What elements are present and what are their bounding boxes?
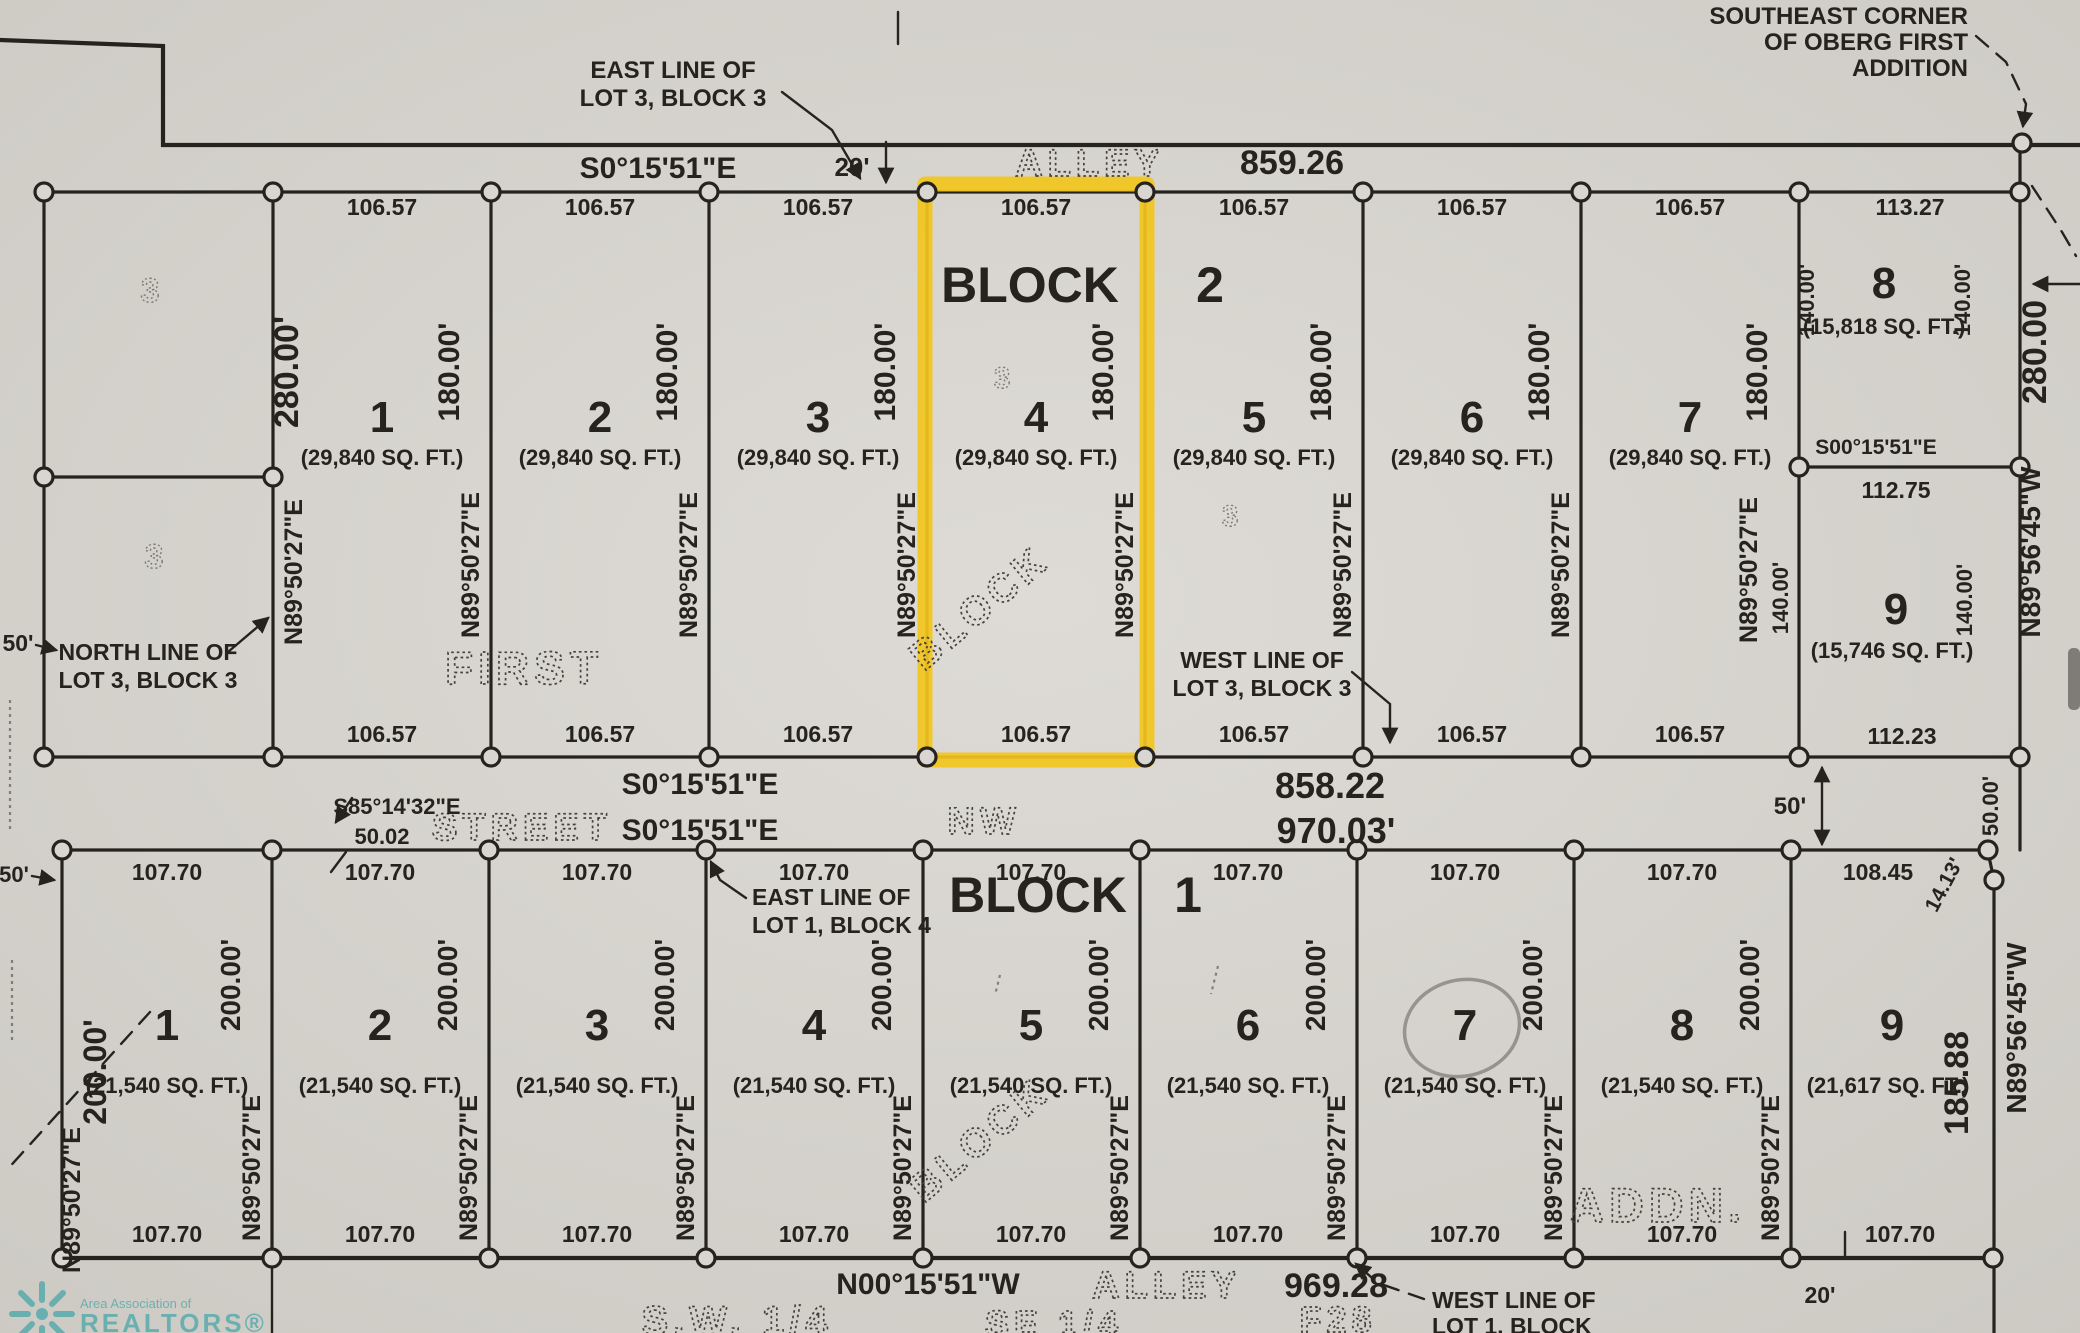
lot-bottom-width: 107.70	[132, 1221, 202, 1247]
logo-line2: REALTORS®	[80, 1308, 267, 1333]
faint-digit: 3	[1222, 500, 1239, 533]
bottom-alley-width: 20'	[1804, 1282, 1835, 1308]
lot-top-width: 107.70	[345, 859, 415, 885]
lot-number: 1	[370, 393, 394, 442]
lot-side-dim: 200.00'	[432, 939, 463, 1031]
se-corner-note: SOUTHEAST CORNER	[1709, 3, 1968, 30]
scan-smudge	[2068, 648, 2080, 710]
lot-number: 3	[585, 1001, 609, 1050]
lot-side-dim: 200.00'	[215, 939, 246, 1031]
lot-side-dim: 200.00'	[1300, 939, 1331, 1031]
lot-area: (29,840 SQ. FT.)	[955, 445, 1118, 470]
fifty-ft-label-b1: 50'	[0, 862, 29, 887]
lot-number: 2	[368, 1001, 392, 1050]
section-fragment-dotted: SE 1/4	[985, 1303, 1123, 1333]
lot-bearing: N89°50'27"E	[1547, 492, 1575, 638]
lot-bottom-width: 107.70	[1213, 1221, 1283, 1247]
lot-area: (21,540 SQ. FT.)	[516, 1073, 679, 1098]
faint-digit: 3	[994, 362, 1011, 395]
lot-side-dim: 180.00'	[1523, 323, 1556, 422]
lot-number: 5	[1242, 393, 1266, 442]
lot-top-width: 106.57	[783, 194, 853, 220]
lot-bearing: N89°50'27"E	[672, 1095, 700, 1241]
west-line-note: WEST LINE OF	[1180, 647, 1344, 673]
section-fragment-dotted: F28	[1299, 1299, 1376, 1333]
lot-side-dim: 180.00'	[1305, 323, 1338, 422]
street-bearing-upper: S0°15'51"E	[622, 768, 779, 801]
lot-bearing: N89°50'27"E	[1735, 497, 1763, 643]
lot-number: 7	[1678, 393, 1702, 442]
lot-area: (29,840 SQ. FT.)	[1391, 445, 1554, 470]
lot-bottom-width: 107.70	[562, 1221, 632, 1247]
lot-side-dim: 200.00'	[1083, 939, 1114, 1031]
north-line-note: LOT 3, BLOCK 3	[59, 667, 238, 693]
lot-bearing: N89°50'27"E	[1757, 1095, 1785, 1241]
lot-top-width: 106.57	[1655, 194, 1725, 220]
street-bearing-lower: S0°15'51"E	[622, 814, 779, 847]
street-width-right: 50.00'	[1978, 776, 2003, 836]
east-boundary-bearing: N89°56'45"W	[2015, 466, 2046, 638]
lot-side-dim: 200.00'	[1517, 939, 1548, 1031]
bottom-alley-bearing: N00°15'51"W	[836, 1268, 1020, 1301]
addn-dotted: ADDN.	[1570, 1180, 1747, 1233]
lot-top-width: 107.70	[1430, 859, 1500, 885]
plat-map-scan: EAST LINE OF LOT 3, BLOCK 3 SOUTHEAST CO…	[0, 0, 2080, 1333]
west-line-note-bottom: WEST LINE OF	[1432, 1287, 1596, 1313]
lot-number: 7	[1453, 1001, 1477, 1050]
lot-number: 8	[1670, 1001, 1694, 1050]
lot-top-width: 106.57	[1219, 194, 1289, 220]
lot-area: (21,540 SQ. FT.)	[1601, 1073, 1764, 1098]
lot-top-width: 107.70	[562, 859, 632, 885]
lot-top-width: 107.70	[996, 859, 1066, 885]
lot-bottom-width: 106.57	[783, 721, 853, 747]
lot-area: (15,746 SQ. FT.)	[1811, 638, 1974, 663]
nw-dotted: NW	[947, 801, 1020, 843]
north-line-note: NORTH LINE OF	[59, 639, 238, 665]
lot-bottom-width: 107.70	[1865, 1221, 1935, 1247]
lot-bottom-width: 106.57	[1219, 721, 1289, 747]
street-dist-lower: 970.03'	[1277, 810, 1396, 851]
block2-number: 2	[1196, 257, 1224, 313]
east-boundary-dim-b1: 185.88	[1938, 1031, 1976, 1135]
lot-number: 9	[1884, 585, 1908, 634]
alley-width-label: 20'	[834, 152, 869, 182]
se-corner-note: ADDITION	[1852, 55, 1968, 82]
lot-number: 6	[1236, 1001, 1260, 1050]
lot-side-dim: 180.00'	[1741, 323, 1774, 422]
block2-word: BLOCK	[941, 257, 1119, 313]
lot-top-width: 107.70	[132, 859, 202, 885]
west-line-note: LOT 3, BLOCK 3	[1173, 675, 1352, 701]
alley-bearing: S0°15'51"E	[580, 152, 737, 185]
lot-top-width: 106.57	[347, 194, 417, 220]
lot-top-width: 106.57	[1001, 194, 1071, 220]
lot-side-dim: 140.00'	[1950, 264, 1975, 337]
east-boundary-bearing-b1: N89°56'45"W	[2001, 942, 2032, 1114]
lot-top-width: 106.57	[1437, 194, 1507, 220]
lot-bearing: N89°50'27"E	[1329, 492, 1357, 638]
lot-area: (29,840 SQ. FT.)	[737, 445, 900, 470]
lot-side-dim: 180.00'	[1087, 323, 1120, 422]
east-boundary-dim: 280.00	[2016, 300, 2054, 404]
lot-top-width: 108.45	[1843, 859, 1914, 885]
faint-digit: 3	[145, 538, 164, 576]
lot-area: (21,540 SQ. FT.)	[299, 1073, 462, 1098]
lot-number: 9	[1880, 1001, 1904, 1050]
lot-bearing: N89°50'27"E	[455, 1095, 483, 1241]
faint-digit: 3	[141, 272, 160, 310]
lot-side-dim: 180.00'	[651, 323, 684, 422]
lot-bottom-width: 106.57	[347, 721, 417, 747]
lot-area: (29,840 SQ. FT.)	[301, 445, 464, 470]
lot-top-width: 107.70	[779, 859, 849, 885]
lot9-bottom-width: 112.23	[1867, 723, 1936, 749]
west-boundary-dim-b1: 200.00'	[77, 1019, 113, 1124]
lot-bearing: N89°50'27"E	[675, 492, 703, 638]
lot-number: 2	[588, 393, 612, 442]
lot-bottom-width: 106.57	[1437, 721, 1507, 747]
first-street-dotted: FIRST	[445, 642, 603, 694]
lot-number: 4	[802, 1001, 827, 1050]
east-line-note-b1: LOT 1, BLOCK 4	[752, 912, 931, 938]
lot-bearing: N89°50'27"E	[893, 492, 921, 638]
lot-number: 6	[1460, 393, 1484, 442]
east-line-note-b1: EAST LINE OF	[752, 884, 910, 910]
lot-number: 5	[1019, 1001, 1043, 1050]
lot-top-width: 106.57	[565, 194, 635, 220]
lot-number: 8	[1872, 259, 1896, 308]
lot-number: 3	[806, 393, 830, 442]
lot-bottom-width: 107.70	[345, 1221, 415, 1247]
lot1-left-dim: 280.00'	[268, 316, 306, 428]
lot-bearing: N89°50'27"E	[1106, 1095, 1134, 1241]
lot-side-dim: 200.00'	[866, 939, 897, 1031]
lot-bottom-width: 106.57	[1001, 721, 1071, 747]
lot-bearing: N89°50'27"E	[457, 492, 485, 638]
s85-distance: 50.02	[354, 824, 409, 849]
lot-side-dim: 180.00'	[869, 323, 902, 422]
bottom-alley-dotted: ALLEY	[1092, 1265, 1242, 1307]
lot-side-dim: 140.00'	[1794, 264, 1819, 337]
lot8-bottom-width: 112.75	[1861, 477, 1930, 503]
lot-side-dim: 140.00'	[1768, 562, 1793, 635]
lot-bottom-width: 107.70	[779, 1221, 849, 1247]
section-fragment-dotted: S.W. 1/4	[641, 1299, 832, 1333]
lot-side-dim: 180.00'	[433, 323, 466, 422]
lot-side-dim: 140.00'	[1952, 564, 1977, 637]
lot-top-width: 107.70	[1213, 859, 1283, 885]
lot-bearing: N89°50'27"E	[1323, 1095, 1351, 1241]
street-width-label: 50'	[1774, 793, 1806, 820]
east-line-note: LOT 3, BLOCK 3	[580, 85, 767, 112]
fifty-ft-label: 50'	[2, 630, 33, 656]
lot-area: (21,540 SQ. FT.)	[1167, 1073, 1330, 1098]
lot-bottom-width: 106.57	[565, 721, 635, 747]
se-corner-note: OF OBERG FIRST	[1764, 29, 1968, 56]
lot-area: (29,840 SQ. FT.)	[519, 445, 682, 470]
lot-area: (29,840 SQ. FT.)	[1609, 445, 1772, 470]
lot-area: (29,840 SQ. FT.)	[1173, 445, 1336, 470]
west-line-note-bottom: LOT 1, BLOCK	[1432, 1313, 1592, 1333]
lot-bearing: N89°50'27"E	[238, 1095, 266, 1241]
lot-top-width: 107.70	[1647, 859, 1717, 885]
lot-side-dim: 200.00'	[649, 939, 680, 1031]
lot1-left-bearing: N89°50'27"E	[280, 499, 308, 645]
lot-bottom-width: 107.70	[996, 1221, 1066, 1247]
lot-number: 1	[155, 1001, 179, 1050]
alley-name-dotted: ALLEY	[1015, 143, 1165, 185]
east-line-note: EAST LINE OF	[590, 57, 755, 84]
street-dist-upper: 858.22	[1275, 765, 1385, 806]
west-boundary-bearing-b1: N89°50'27"E	[58, 1127, 86, 1273]
lot-bottom-width: 106.57	[1655, 721, 1725, 747]
lot-area: (15,818 SQ. FT.)	[1803, 314, 1966, 339]
lot-bottom-width: 107.70	[1430, 1221, 1500, 1247]
lot-bearing: N89°50'27"E	[1111, 492, 1139, 638]
lot-number: 4	[1024, 393, 1049, 442]
lot-area: (21,540 SQ. FT.)	[1384, 1073, 1547, 1098]
lot-side-dim: 200.00'	[1734, 939, 1765, 1031]
alley-distance: 859.26	[1240, 144, 1344, 182]
lot-area: (21,540 SQ. FT.)	[733, 1073, 896, 1098]
lot8-bottom-bearing: S00°15'51"E	[1815, 436, 1936, 459]
block1-number: 1	[1174, 867, 1202, 923]
lot-top-width: 113.27	[1875, 194, 1944, 220]
plat-map-svg: EAST LINE OF LOT 3, BLOCK 3 SOUTHEAST CO…	[0, 0, 2080, 1333]
lot-bearing: N89°50'27"E	[1540, 1095, 1568, 1241]
